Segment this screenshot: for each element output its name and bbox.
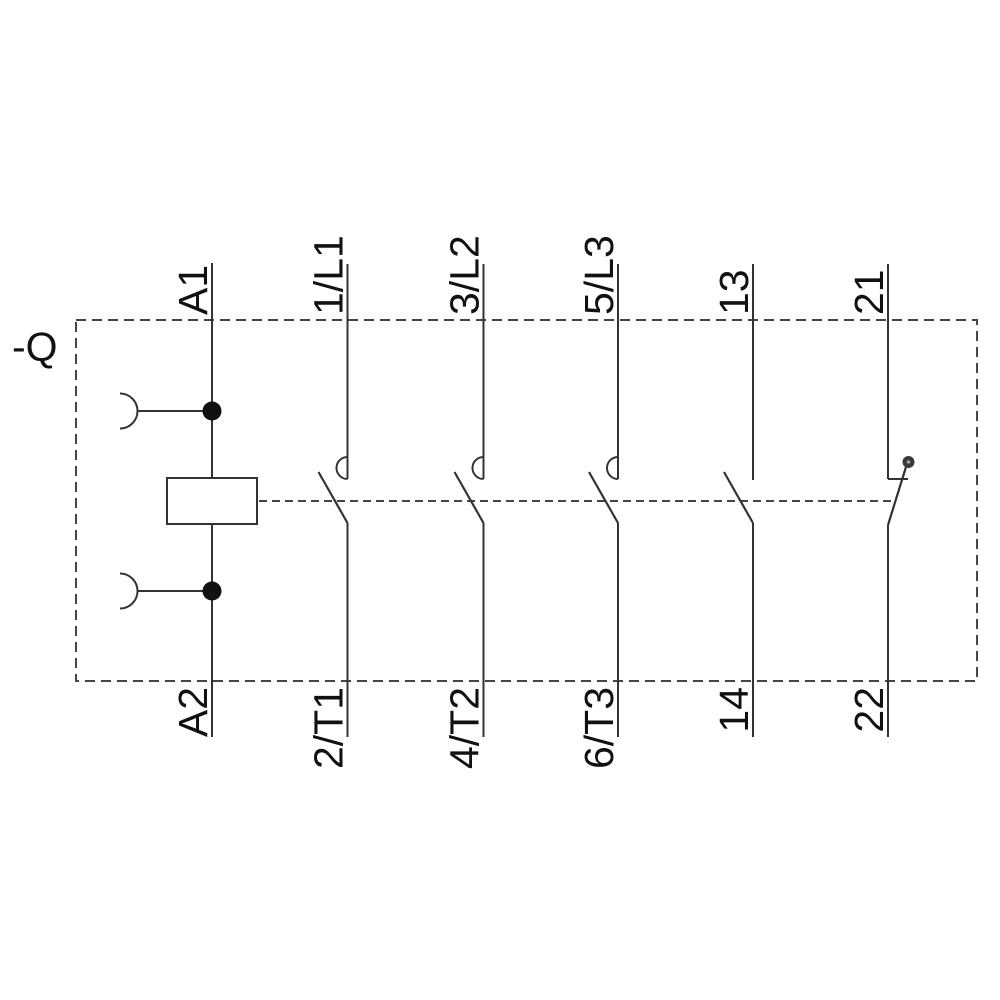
terminal-label-13: 13 bbox=[711, 269, 757, 315]
terminal-label-21: 21 bbox=[846, 269, 892, 315]
terminal-label-4t2: 4/T2 bbox=[442, 687, 488, 769]
terminal-label-22: 22 bbox=[846, 687, 892, 733]
contactor-schematic-diagram: -Q A1 A2 1/L1 2/T1 bbox=[0, 0, 1000, 1000]
schematic-page: -Q A1 A2 1/L1 2/T1 bbox=[0, 0, 1000, 1000]
coil-symbol bbox=[167, 478, 257, 524]
terminal-label-a1: A1 bbox=[170, 265, 216, 315]
terminal-label-3l2: 3/L2 bbox=[442, 235, 488, 315]
device-tag-label: -Q bbox=[12, 324, 58, 370]
terminal-label-5l3: 5/L3 bbox=[576, 235, 622, 315]
terminal-label-1l1: 1/L1 bbox=[306, 235, 352, 315]
terminal-label-2t1: 2/T1 bbox=[306, 687, 352, 769]
junction-dot-bottom bbox=[203, 582, 222, 601]
junction-dot-top bbox=[203, 402, 222, 421]
terminal-label-a2: A2 bbox=[170, 687, 216, 737]
terminal-label-14: 14 bbox=[711, 687, 757, 733]
aux-nc-pivot-dot-center bbox=[907, 460, 910, 463]
terminal-label-6t3: 6/T3 bbox=[576, 687, 622, 769]
